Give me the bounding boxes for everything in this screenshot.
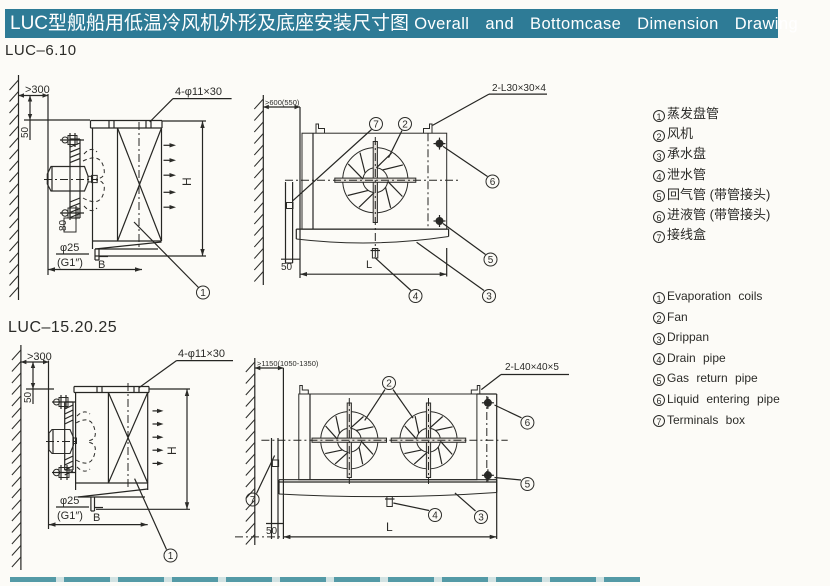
svg-text:>300: >300 <box>25 84 50 96</box>
svg-text:4: 4 <box>432 510 438 521</box>
svg-text:4-φ11×30: 4-φ11×30 <box>178 348 225 360</box>
svg-text:50: 50 <box>281 262 293 273</box>
svg-text:φ25: φ25 <box>60 495 79 507</box>
svg-text:H: H <box>180 177 194 186</box>
svg-text:1: 1 <box>200 288 206 299</box>
svg-text:L: L <box>366 259 372 271</box>
svg-text:3: 3 <box>478 512 484 523</box>
svg-text:50: 50 <box>23 391 34 403</box>
svg-text:2-L30×30×4: 2-L30×30×4 <box>492 83 546 94</box>
svg-text:5: 5 <box>488 255 494 266</box>
svg-text:7: 7 <box>373 119 379 130</box>
svg-text:H: H <box>165 446 179 455</box>
svg-text:1: 1 <box>168 551 174 562</box>
svg-text:6: 6 <box>525 418 531 429</box>
svg-text:3: 3 <box>486 291 492 302</box>
svg-text:50: 50 <box>266 526 278 537</box>
svg-text:4-φ11×30: 4-φ11×30 <box>175 86 222 98</box>
svg-text:2-L40×40×5: 2-L40×40×5 <box>505 362 559 373</box>
svg-text:>1150(1050-1350): >1150(1050-1350) <box>257 359 319 368</box>
svg-text:(G1″): (G1″) <box>57 510 83 522</box>
svg-text:L: L <box>386 520 393 534</box>
svg-text:2: 2 <box>402 119 408 130</box>
svg-text:7: 7 <box>250 495 256 506</box>
svg-text:5: 5 <box>525 479 531 490</box>
svg-text:6: 6 <box>490 177 496 188</box>
svg-text:φ25: φ25 <box>60 242 79 254</box>
svg-text:4: 4 <box>413 291 419 302</box>
svg-text:80: 80 <box>58 219 69 231</box>
svg-text:50: 50 <box>20 126 31 138</box>
svg-text:(G1″): (G1″) <box>57 257 83 269</box>
svg-text:B: B <box>93 512 100 524</box>
svg-text:2: 2 <box>386 378 392 389</box>
